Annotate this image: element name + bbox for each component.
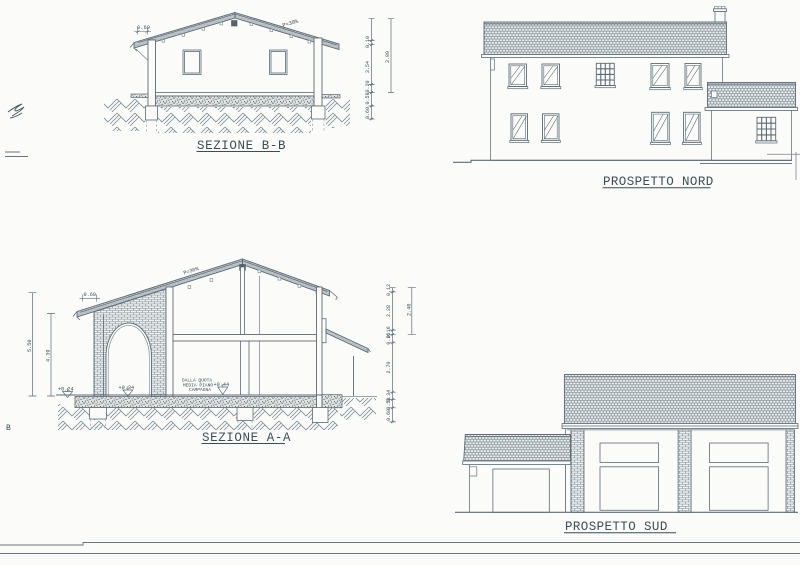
- svg-text:PROSPETTO NORD: PROSPETTO NORD: [603, 175, 714, 189]
- svg-text:2.28: 2.28: [386, 305, 392, 317]
- svg-text:CAMPAGNA: CAMPAGNA: [189, 387, 211, 393]
- svg-text:SEZIONE B-B: SEZIONE B-B: [197, 139, 286, 153]
- svg-text:2.70: 2.70: [386, 361, 392, 373]
- svg-text:0.60: 0.60: [386, 409, 392, 421]
- svg-text:0.12: 0.12: [386, 284, 392, 296]
- svg-text:0.58: 0.58: [365, 92, 371, 104]
- svg-text:0.60: 0.60: [137, 25, 150, 31]
- svg-text:5.50: 5.50: [27, 340, 33, 352]
- svg-text:SEZIONE A-A: SEZIONE A-A: [202, 431, 291, 445]
- svg-text:0.60: 0.60: [365, 107, 371, 119]
- svg-text:0.26: 0.26: [386, 333, 392, 345]
- svg-text:P=30%: P=30%: [282, 18, 300, 29]
- svg-text:0.10: 0.10: [365, 36, 371, 48]
- svg-text:3.89: 3.89: [385, 51, 391, 63]
- svg-text:2.54: 2.54: [365, 61, 371, 73]
- svg-text:0.60: 0.60: [84, 292, 96, 298]
- svg-text:PROSPETTO SUD: PROSPETTO SUD: [565, 520, 668, 534]
- svg-text:0.50: 0.50: [386, 398, 392, 410]
- svg-text:0.20: 0.20: [365, 80, 371, 92]
- svg-text:B: B: [6, 424, 11, 433]
- svg-text:2.40: 2.40: [406, 304, 412, 316]
- svg-text:4.39: 4.39: [46, 350, 52, 362]
